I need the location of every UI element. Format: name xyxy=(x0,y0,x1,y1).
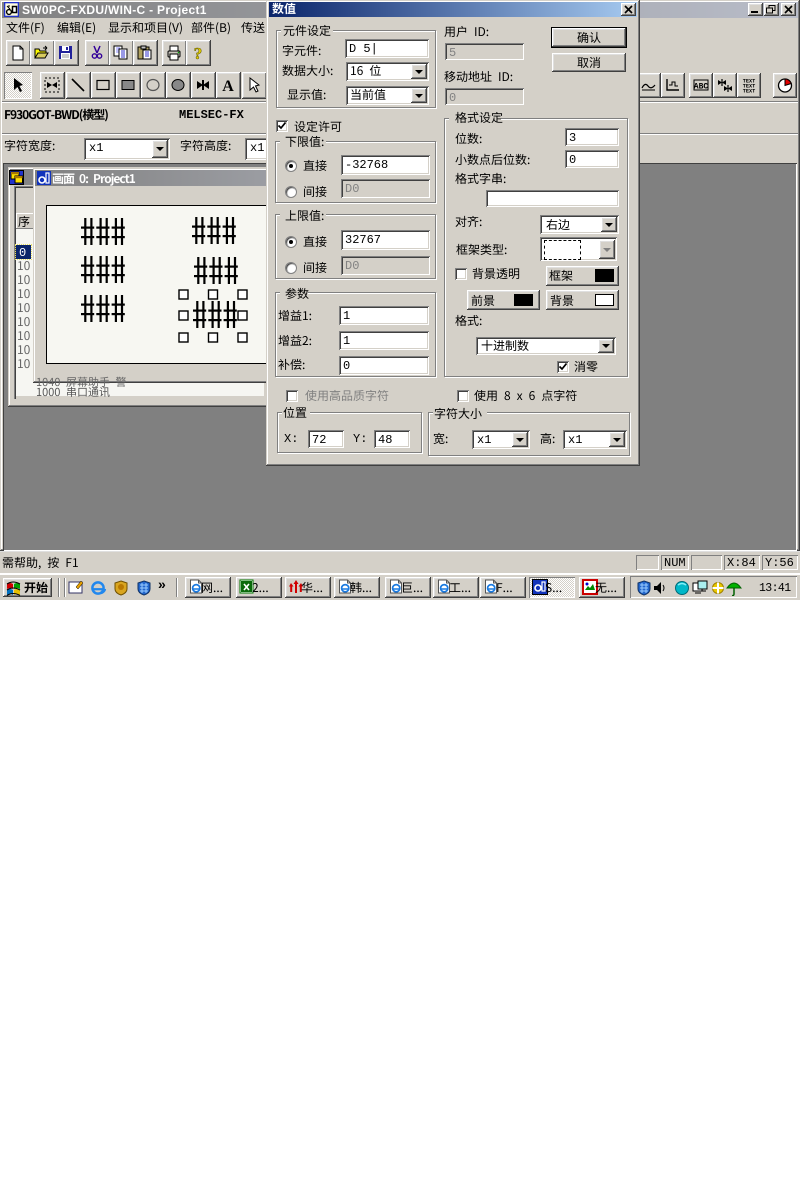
svg-text:?: ? xyxy=(194,45,203,61)
svg-text:TEXT: TEXT xyxy=(743,89,755,94)
svg-text:ABC: ABC xyxy=(694,83,709,92)
svg-text:A: A xyxy=(222,78,234,93)
